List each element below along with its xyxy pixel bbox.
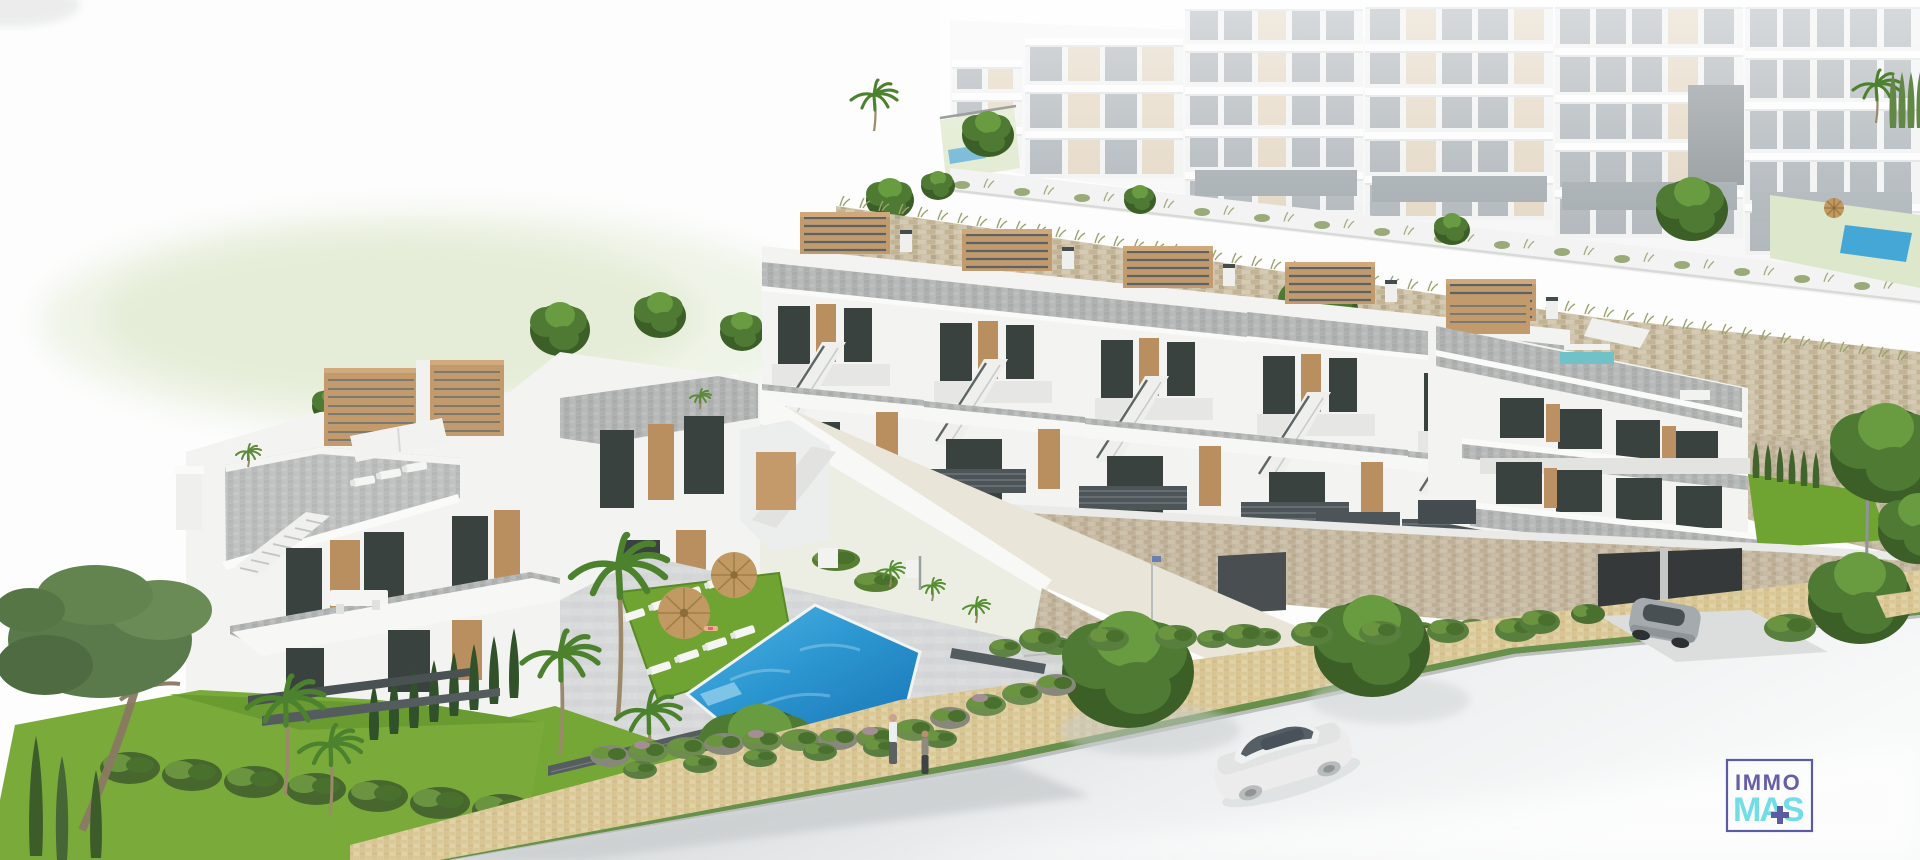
svg-text:MAS: MAS [1733,791,1804,829]
